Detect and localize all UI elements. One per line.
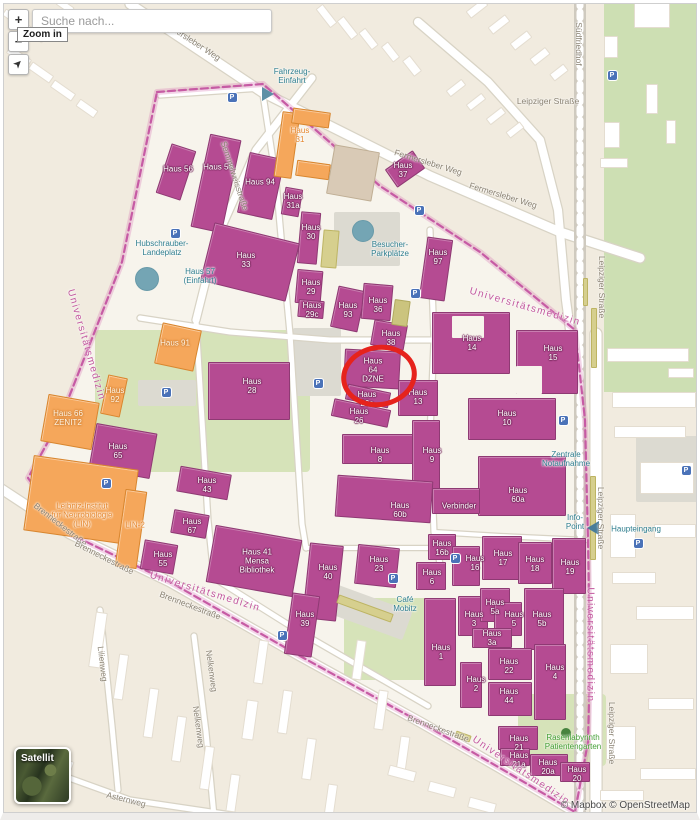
poi-label: Fahrzeug- Einfahrt	[274, 68, 310, 86]
building-label: Haus 21	[510, 735, 529, 753]
building-label: Haus 3	[465, 611, 484, 629]
boundary-label: Universitätsmedizin	[584, 587, 595, 702]
street-label: Semmelweisstraße	[218, 140, 249, 212]
street-label: Leipziger Straße	[517, 97, 579, 107]
building-label: Haus 20a	[539, 759, 558, 777]
building-label: Haus 18	[526, 556, 545, 574]
building-label: Haus 5	[505, 611, 524, 629]
building-label: Haus 5a	[486, 599, 505, 617]
satellite-toggle-label: Satellit	[21, 753, 54, 764]
street-label: Nelkenweg	[190, 706, 205, 749]
labels-layer: Haus 56Haus 58Haus 94Haus 31Haus 31aHaus…	[0, 0, 700, 820]
building-label: Haus 8	[371, 447, 390, 465]
building-label: Haus 5b	[533, 611, 552, 629]
building-label: Haus 23	[370, 556, 389, 574]
building-label: Haus 58	[203, 164, 233, 173]
street-label: Leipziger Straße	[596, 256, 606, 318]
building-label: Haus 56	[163, 166, 193, 175]
poi-label: Haus 57 (Einfahrt)	[184, 268, 217, 286]
building-label: Haus 16b	[433, 540, 452, 558]
building-label: Haus 36	[369, 297, 388, 315]
building-label: Haus 16	[466, 555, 485, 573]
street-label: Leipziger Straße	[595, 487, 605, 549]
building-label: Haus 60a	[509, 487, 528, 505]
poi-label: Besucher- Parkplätze	[371, 241, 409, 259]
building-label: Verbinder	[442, 503, 476, 512]
building-label: Haus 9	[423, 447, 442, 465]
building-label: Haus 17	[494, 550, 513, 568]
street-label: Asternweg	[105, 791, 146, 810]
building-label: Haus 33	[237, 252, 256, 270]
building-label: Haus 91	[160, 340, 190, 349]
boundary-label: Universitätsmedizin	[468, 286, 582, 329]
building-label: Haus 65	[109, 443, 128, 461]
street-label: Brenneckestraße	[32, 501, 89, 548]
boundary-label: Universitätsmedizin	[148, 570, 261, 614]
satellite-toggle[interactable]: Satellit	[14, 747, 71, 804]
building-label: Haus 43	[198, 477, 217, 495]
building-label: Haus 14	[463, 335, 482, 353]
building-label: Haus 60b	[391, 502, 410, 520]
building-label: Haus 93	[339, 302, 358, 320]
street-label: Nelkenweg	[203, 650, 218, 693]
building-label: Haus 41 Mensa Bibliothek	[240, 549, 275, 576]
search-input[interactable]	[32, 9, 272, 33]
street-label: Brenneckestraße	[406, 713, 470, 744]
building-label: Haus 19	[561, 559, 580, 577]
building-label: Leibniz-Institut für Neurobiologie (LIN)	[52, 503, 113, 530]
building-label: Haus 67	[183, 518, 202, 536]
building-label: Haus 21a	[510, 752, 529, 770]
boundary-label: Universitätsmedizin	[470, 734, 572, 808]
building-label: Haus 44	[500, 688, 519, 706]
building-label: Haus 15	[544, 345, 563, 363]
building-label: Haus 66 ZENIT2	[53, 410, 83, 428]
building-label: Haus 4	[546, 664, 565, 682]
building-label: Haus 39	[296, 611, 315, 629]
building-label: Haus 40	[319, 564, 338, 582]
building-label: Haus 6	[423, 569, 442, 587]
building-label: Haus 94	[245, 179, 275, 188]
poi-label: Hubschrauber- Landeplatz	[136, 240, 189, 258]
boundary-label: Universitätsmedizin	[65, 288, 108, 402]
building-label: Haus 1	[432, 644, 451, 662]
locate-arrow-icon: ➤	[9, 55, 29, 75]
building-label: Haus 13	[409, 389, 428, 407]
building-label: Haus 20	[568, 766, 587, 784]
poi-label: Zentrale Notaufnahme	[542, 451, 590, 469]
street-label: Leipziger Straße	[606, 702, 616, 764]
street-label: Lilienweg	[95, 646, 109, 682]
map-attribution[interactable]: © Mapbox © OpenStreetMap	[561, 800, 690, 811]
building-label: Haus 3a	[483, 630, 502, 648]
building-label: Haus 31a	[284, 193, 303, 211]
street-label: Brenneckestraße	[73, 539, 135, 577]
street-label: Fermersleber Weg	[468, 181, 538, 211]
building-label: Haus 30	[302, 224, 321, 242]
poi-label: Haupteingang	[611, 526, 661, 535]
building-label: Haus 29c	[303, 302, 322, 320]
poi-label: Info- Point	[566, 514, 584, 532]
locate-button[interactable]: ➤	[8, 54, 29, 75]
poi-label: Rasenlabyrinth Patientengarten	[545, 734, 602, 752]
building-label: Haus 97	[429, 249, 448, 267]
building-label: LIN-2	[125, 522, 145, 531]
building-label: Haus 55	[154, 551, 173, 569]
building-label: Haus 26	[350, 408, 369, 426]
building-label: Haus 31	[291, 127, 310, 145]
street-label: Fermersleber Weg	[393, 148, 463, 178]
zoom-in-tooltip: Zoom in	[17, 27, 68, 42]
building-label: Haus 10	[498, 410, 517, 428]
building-label: Haus 92	[106, 387, 125, 405]
building-label: Haus 28	[243, 378, 262, 396]
building-label: Haus 2	[467, 676, 486, 694]
street-label: Südfriedhof	[573, 22, 583, 65]
street-label: Brenneckestraße	[158, 590, 222, 622]
building-label: Haus 22	[500, 658, 519, 676]
poi-label: Café Mobitz	[393, 596, 417, 614]
building-label: Haus 37	[394, 162, 413, 180]
map-canvas[interactable]: PPPPPPPPPPPPPP Haus 56Haus 58Haus 94Haus…	[0, 0, 700, 820]
map-window: PPPPPPPPPPPPPP Haus 56Haus 58Haus 94Haus…	[0, 0, 700, 820]
building-label: Haus 29	[302, 279, 321, 297]
